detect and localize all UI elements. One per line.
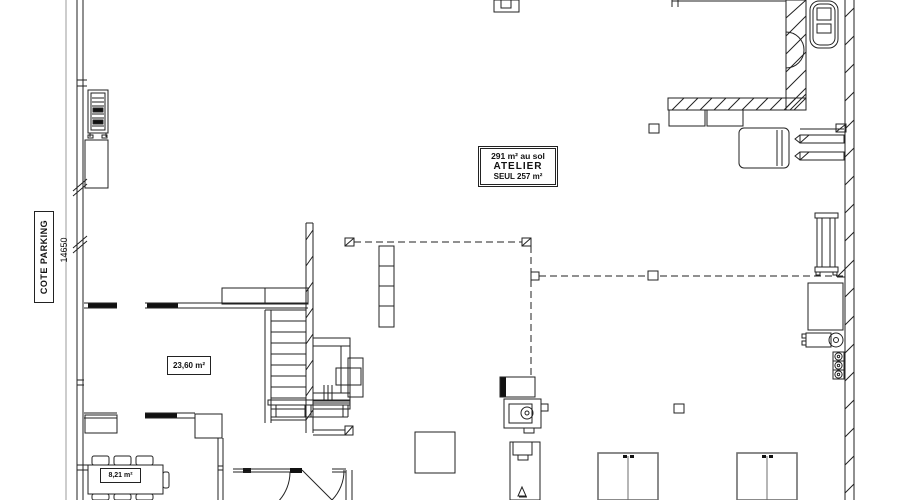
dimension-14650: 14650 [58, 227, 70, 273]
wall-cabinet-top-left [85, 140, 108, 188]
wall-fills [88, 303, 506, 473]
right-wall-equipment [802, 283, 844, 379]
atelier-name: ATELIER [482, 161, 554, 172]
floor-plan-drawing [0, 0, 900, 500]
cote-parking-label: COTE PARKING [34, 211, 54, 303]
atelier-area-sol: 291 m² au sol [482, 151, 554, 161]
wardrobe-cabinets [598, 453, 797, 500]
machine-cluster [500, 377, 548, 500]
left-exterior-wall [73, 0, 88, 500]
right-exterior-wall [845, 0, 854, 500]
dashed-axes [345, 238, 845, 413]
radiator-unit [88, 90, 108, 138]
shelf-stack [379, 246, 394, 327]
floor-post [415, 432, 455, 473]
interior-wall-a [84, 288, 308, 308]
machine-upper-right [739, 128, 844, 168]
ladder [815, 213, 845, 277]
stair-side-shelving [313, 338, 363, 409]
interior-wall-d [218, 438, 223, 500]
water-tank [810, 1, 838, 48]
room-area-23-60: 23,60 m² [167, 356, 211, 375]
floor-plan-canvas: COTE PARKING 14650 291 m² au sol ATELIER… [0, 0, 900, 500]
atelier-area-box: 291 m² au sol ATELIER SEUL 257 m² [478, 146, 558, 187]
top-right-walls [649, 0, 846, 133]
double-doors [233, 469, 352, 500]
atelier-area-box-inner: 291 m² au sol ATELIER SEUL 257 m² [480, 148, 556, 185]
column-top-center [494, 0, 519, 12]
room-area-8-21: 8,21 m² [100, 468, 141, 483]
atelier-area-seul: SEUL 257 m² [482, 172, 554, 182]
